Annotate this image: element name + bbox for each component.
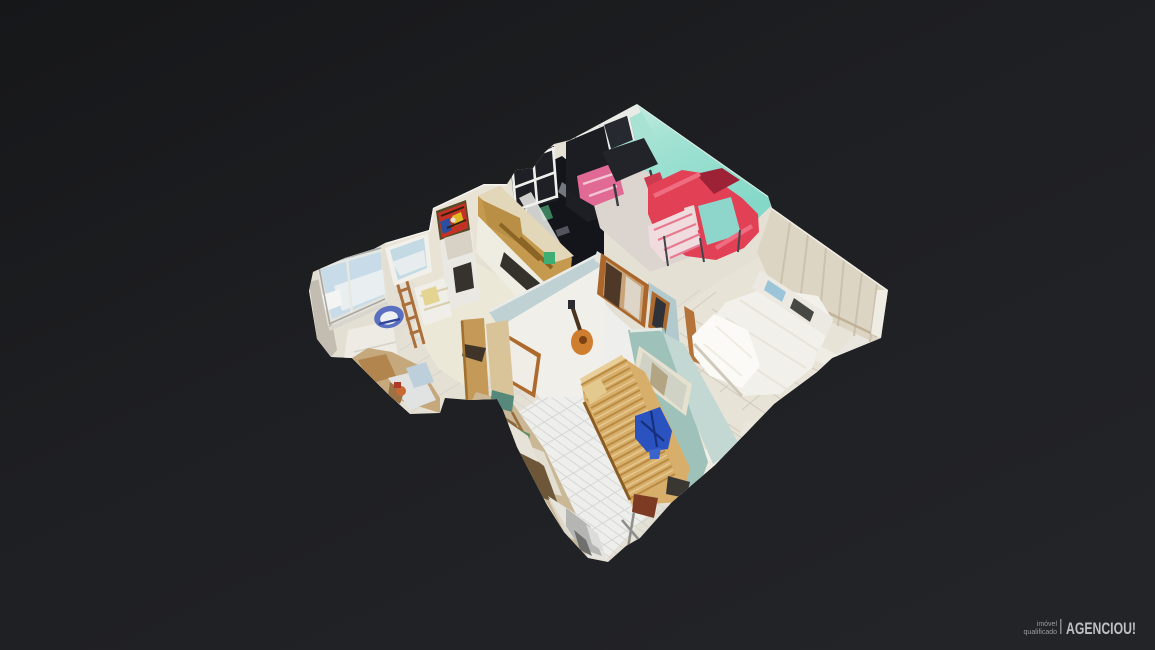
svg-text:qualificado: qualificado [1024, 629, 1058, 636]
svg-text:AGENCIOU!: AGENCIOU! [1066, 619, 1136, 638]
svg-text:imóvel: imóvel [1037, 621, 1058, 628]
